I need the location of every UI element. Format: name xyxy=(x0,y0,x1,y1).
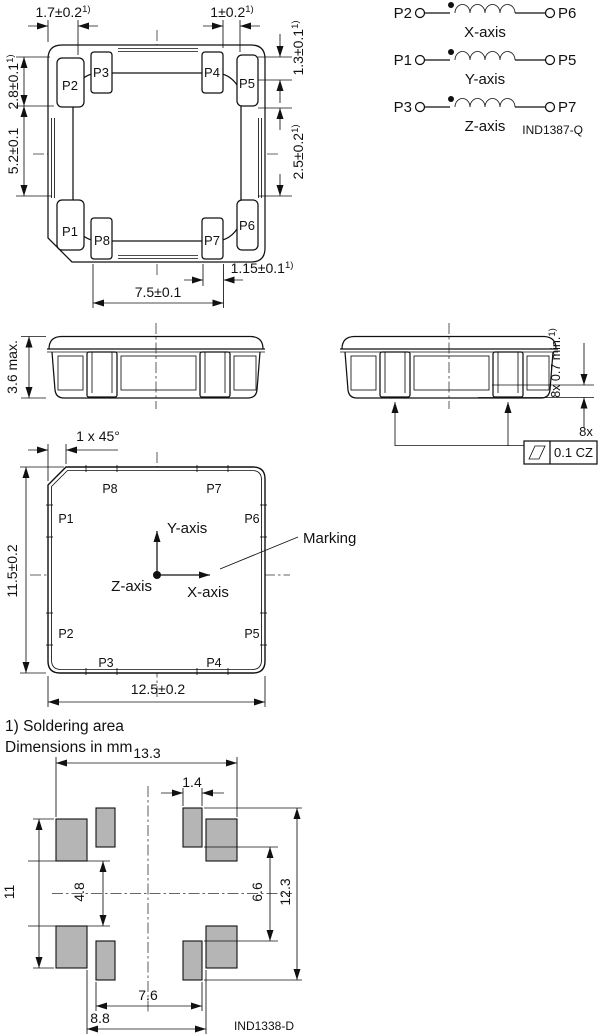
solder-pad xyxy=(96,808,115,847)
z-axis-label: Z-axis xyxy=(111,578,152,595)
terminal-label-left: P1 xyxy=(394,52,412,69)
polarity-dot xyxy=(448,2,454,8)
dim-left-lower: 5.2±0.1 xyxy=(5,127,21,174)
dim-bottom-offset: 1.15±0.11) xyxy=(231,260,294,276)
pad-label-p2: P2 xyxy=(58,627,73,641)
solder-pad xyxy=(96,941,115,980)
dim-inner-span: 7.6 xyxy=(138,987,158,1003)
pad-label-p6: P6 xyxy=(239,218,255,233)
dim-pad-width: 1.4 xyxy=(182,774,202,790)
figure-id-land-pattern: IND1338-D xyxy=(234,1019,294,1033)
terminal-circle xyxy=(546,9,555,18)
note-dimensions-mm: Dimensions in mm xyxy=(5,739,132,756)
pad-label-p5: P5 xyxy=(244,627,259,641)
inductor-coil-icon xyxy=(455,99,515,108)
dim-right-span: 12.3 xyxy=(277,878,293,905)
solder-pad xyxy=(183,808,202,847)
land-pattern: 13.3 1.4 11 4.8 6.6 12.3 7.6 8.8 IND1338… xyxy=(1,745,302,1034)
pad-label-p3: P3 xyxy=(93,65,109,80)
top-view: P2 P3 P4 P5 P1 P8 P7 P6 1.7±0.21) 1±0.21… xyxy=(5,4,306,308)
axis-label: X-axis xyxy=(464,24,506,41)
flatness-tolerance: 0.1 CZ xyxy=(554,445,593,460)
terminal-circle xyxy=(416,103,425,112)
dim-right-gap: 6.6 xyxy=(249,882,265,902)
dim-left-upper: 2.8±0.11) xyxy=(5,54,21,109)
dim-right-lower: 2.5±0.21) xyxy=(290,124,306,179)
terminal-circle xyxy=(416,9,425,18)
pad-label-p4: P4 xyxy=(206,656,221,670)
footnotes: 1) Soldering area Dimensions in mm xyxy=(5,718,132,756)
note-soldering-area: 1) Soldering area xyxy=(5,718,124,735)
terminal-label-right: P7 xyxy=(558,99,576,116)
solder-pad xyxy=(206,926,237,968)
inductor-coil-icon xyxy=(455,52,515,61)
solder-pad xyxy=(206,819,237,861)
pad-label-p6: P6 xyxy=(244,512,259,526)
dim-top-right: 1±0.21) xyxy=(210,4,253,20)
dim-left-span: 11 xyxy=(1,885,17,900)
axis-label: Z-axis xyxy=(465,118,506,135)
pad-label-p7: P7 xyxy=(206,482,221,496)
pad-label-p5: P5 xyxy=(239,76,255,91)
solder-pad xyxy=(183,941,202,980)
y-axis-label: Y-axis xyxy=(167,520,207,537)
terminal-circle xyxy=(546,103,555,112)
terminal-label-right: P5 xyxy=(558,52,576,69)
side-view-left: 3.6 max. xyxy=(4,323,265,409)
x-axis-label: X-axis xyxy=(187,584,229,601)
dim-chamfer: 1 x 45° xyxy=(76,428,120,444)
coil-x: P2 P6 X-axis xyxy=(394,2,577,41)
drawing-canvas: P2 P3 P4 P5 P1 P8 P7 P6 1.7±0.21) 1±0.21… xyxy=(0,0,600,1035)
dim-terminal-height: 8x 0.7 min.1) xyxy=(547,328,563,398)
flatness-callout: 0.1 CZ 8x xyxy=(524,424,597,464)
inductor-coil-icon xyxy=(455,5,515,14)
schematic: P2 P6 X-axis P1 P5 Y-axis P3 xyxy=(394,2,583,137)
terminal-label-right: P6 xyxy=(558,5,576,22)
terminal-label-left: P3 xyxy=(394,99,412,116)
pad-label-p8: P8 xyxy=(102,482,117,496)
terminal-label-left: P2 xyxy=(394,5,412,22)
pad-label-p4: P4 xyxy=(204,65,220,80)
dim-body-height: 11.5±0.2 xyxy=(4,544,20,598)
dim-body-height: 3.6 max. xyxy=(4,340,20,394)
pad-label-p8: P8 xyxy=(94,233,110,248)
pad-label-p1: P1 xyxy=(62,224,78,239)
pad-label-p1: P1 xyxy=(58,512,73,526)
flatness-count: 8x xyxy=(579,424,593,439)
dim-center-gap: 8.8 xyxy=(90,1010,110,1026)
dim-body-width: 12.5±0.2 xyxy=(131,681,186,697)
pad-label-p7: P7 xyxy=(204,233,220,248)
dim-bottom-span: 7.5±0.1 xyxy=(135,284,182,300)
bottom-view: P8 P7 P1 P6 P2 P5 P3 P4 Y-axis X-axis Z-… xyxy=(4,428,356,707)
terminal-circle xyxy=(546,56,555,65)
dim-top-left: 1.7±0.21) xyxy=(35,4,90,20)
solder-pad xyxy=(56,819,87,861)
coil-y: P1 P5 Y-axis xyxy=(394,49,577,88)
marking-label: Marking xyxy=(303,530,356,547)
pad-label-p3: P3 xyxy=(98,656,113,670)
datasheet-drawing-page: P2 P3 P4 P5 P1 P8 P7 P6 1.7±0.21) 1±0.21… xyxy=(0,0,600,1035)
terminal-circle xyxy=(416,56,425,65)
pad-label-p2: P2 xyxy=(62,78,78,93)
side-view-right: 8x 0.7 min.1) 0.1 CZ 8x xyxy=(340,323,597,464)
solder-pad xyxy=(56,926,87,968)
polarity-dot xyxy=(448,49,454,55)
figure-id-schematic: IND1387-Q xyxy=(522,123,583,137)
dim-overall-width: 13.3 xyxy=(133,745,160,761)
polarity-dot xyxy=(448,96,454,102)
dim-right-upper: 1.3±0.11) xyxy=(290,20,306,75)
axis-label: Y-axis xyxy=(465,71,505,88)
dim-left-gap: 4.8 xyxy=(71,882,87,902)
